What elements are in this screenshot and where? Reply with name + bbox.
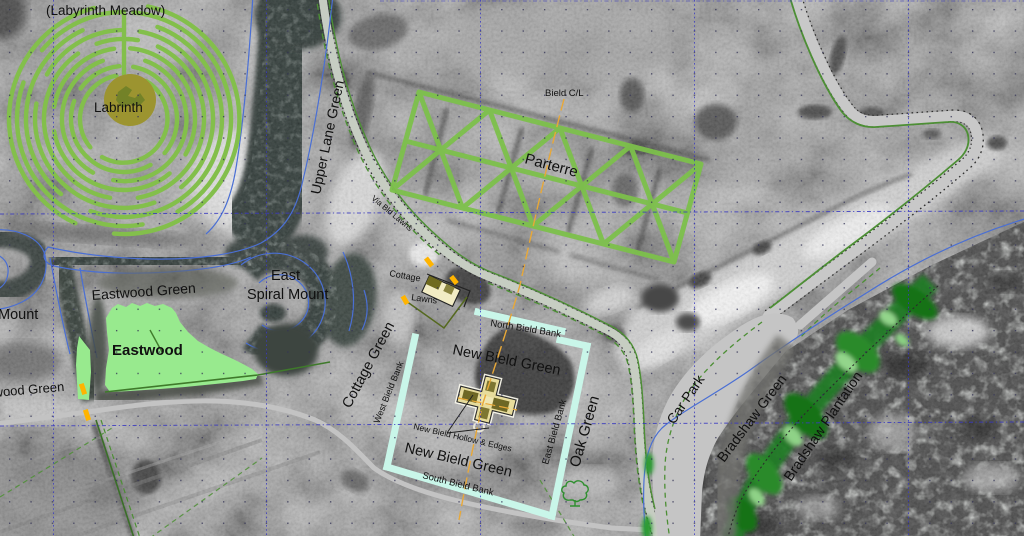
svg-text:Bield C/L: Bield C/L	[545, 88, 584, 99]
svg-text:Eastwood: Eastwood	[112, 342, 183, 359]
svg-text:Labrinth: Labrinth	[94, 100, 143, 115]
svg-text:Spiral Mount: Spiral Mount	[247, 287, 328, 303]
svg-text:Mount: Mount	[0, 307, 38, 323]
svg-text:(Labyrinth Meadow): (Labyrinth Meadow)	[46, 3, 165, 18]
svg-text:East: East	[271, 268, 300, 284]
